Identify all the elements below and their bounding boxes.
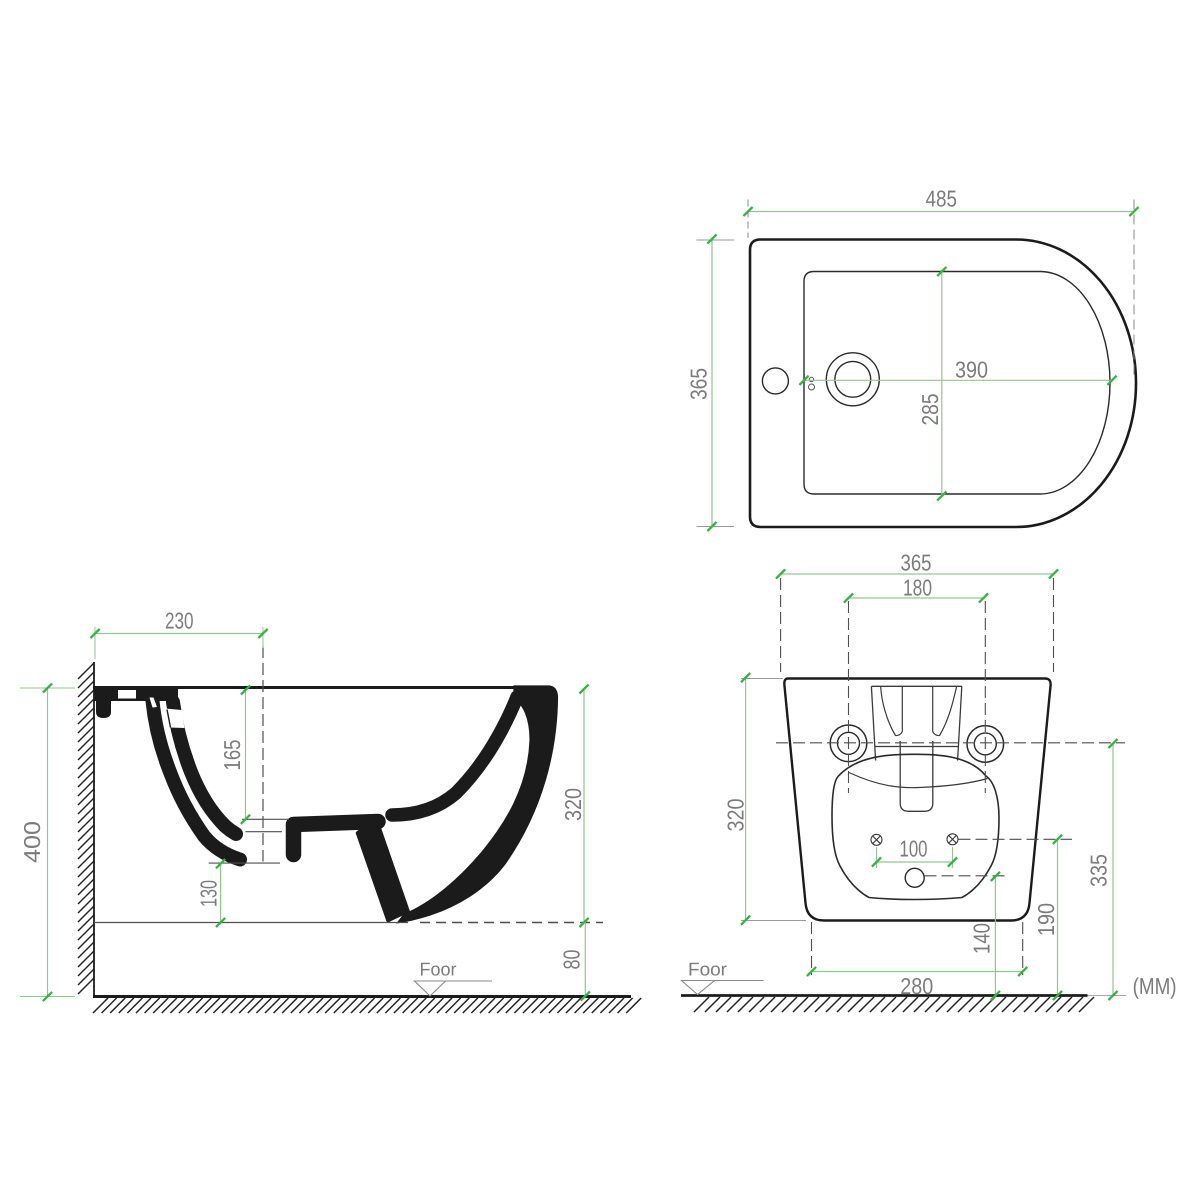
svg-text:365: 365 [901, 550, 932, 576]
svg-text:(MM): (MM) [1133, 973, 1177, 999]
svg-text:285: 285 [917, 394, 943, 426]
svg-text:280: 280 [900, 973, 933, 999]
svg-text:320: 320 [723, 799, 749, 832]
svg-text:80: 80 [559, 950, 585, 970]
svg-text:165: 165 [219, 740, 245, 771]
svg-text:100: 100 [900, 836, 928, 862]
svg-text:390: 390 [955, 357, 988, 383]
svg-text:335: 335 [1086, 854, 1112, 887]
svg-text:400: 400 [19, 821, 45, 863]
svg-text:190: 190 [1033, 903, 1059, 936]
svg-text:130: 130 [196, 880, 222, 907]
svg-text:140: 140 [969, 923, 995, 954]
svg-text:365: 365 [686, 368, 712, 400]
svg-text:230: 230 [165, 608, 194, 634]
svg-text:320: 320 [560, 788, 586, 821]
svg-text:485: 485 [926, 186, 958, 212]
svg-text:180: 180 [903, 575, 932, 601]
svg-text:Foor: Foor [420, 959, 457, 980]
svg-text:Foor: Foor [688, 959, 727, 980]
